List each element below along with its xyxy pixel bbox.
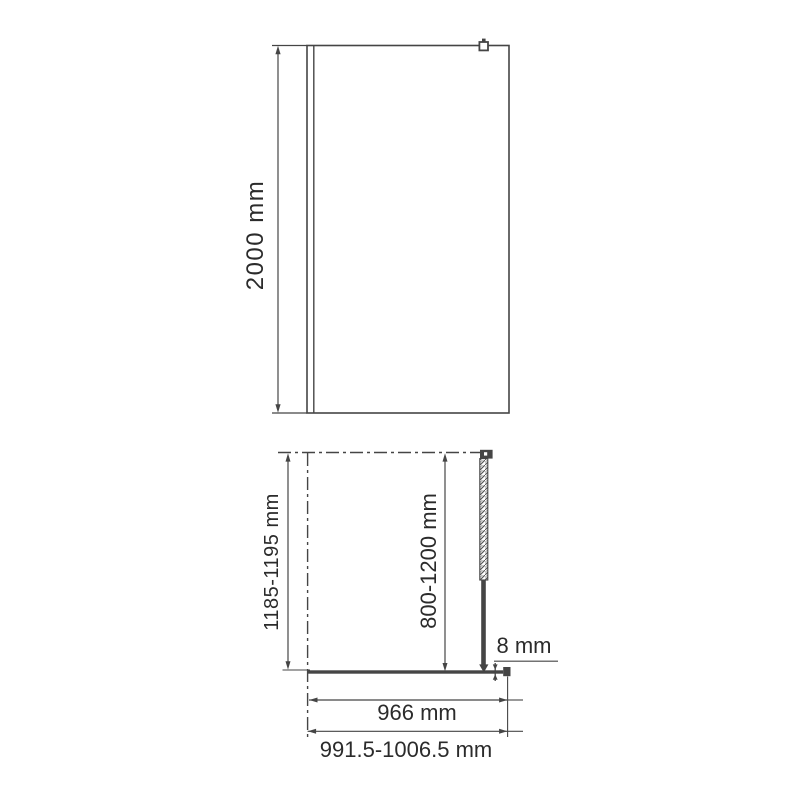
arrow-left bbox=[308, 729, 316, 734]
wall-profile-section bbox=[503, 667, 510, 676]
overall-width-dimension bbox=[308, 729, 523, 734]
support-bar bbox=[479, 450, 492, 673]
glass-thickness-dim-label: 8 mm bbox=[497, 635, 552, 657]
arrow-down bbox=[443, 663, 448, 671]
glass-width-dim-label: 966 mm bbox=[377, 702, 456, 724]
arrow-down bbox=[493, 664, 498, 670]
bar-outer-tube-hatched bbox=[480, 459, 488, 580]
front-view bbox=[272, 39, 509, 413]
arrow-down bbox=[286, 661, 291, 669]
bar-clamp-icon bbox=[479, 39, 488, 51]
depth-dim-label: 1185-1195 mm bbox=[262, 493, 282, 631]
depth-dimension bbox=[283, 453, 311, 670]
support-bar-dimension bbox=[443, 453, 448, 671]
height-dim-label: 2000 mm bbox=[244, 180, 268, 291]
arrow-right bbox=[499, 698, 507, 703]
drawing-linework bbox=[0, 0, 800, 800]
glass-panel-plan bbox=[308, 670, 503, 673]
arrow-up bbox=[286, 453, 291, 461]
glass-panel-front bbox=[307, 46, 509, 414]
arrow-down bbox=[275, 404, 280, 412]
arrow-right bbox=[499, 729, 507, 734]
arrow-up bbox=[443, 453, 448, 461]
bar-inner-tube bbox=[481, 580, 486, 666]
height-dimension bbox=[275, 46, 280, 413]
overall-width-dim-label: 991.5-1006.5 mm bbox=[320, 739, 492, 761]
arrow-left bbox=[309, 698, 317, 703]
technical-drawing-page: 2000 mm 1185-1195 mm 800-1200 mm 8 mm 96… bbox=[0, 0, 800, 800]
arrow-up bbox=[493, 674, 498, 680]
arrow-up bbox=[275, 46, 280, 54]
support-bar-dim-label: 800-1200 mm bbox=[418, 493, 440, 629]
